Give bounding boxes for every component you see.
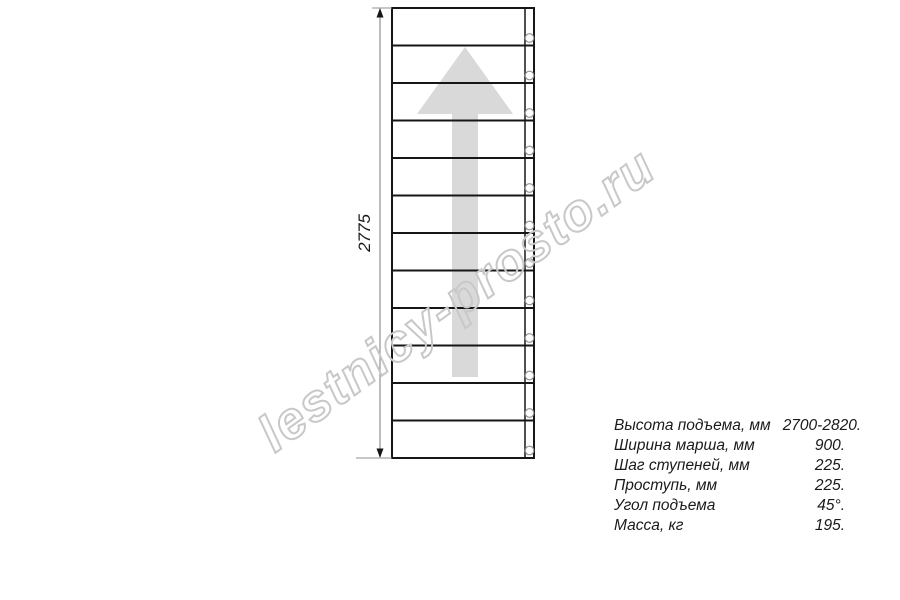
spec-label: Высота подъема, мм xyxy=(614,416,771,436)
spec-label: Масса, кг xyxy=(614,516,683,536)
spec-label: Проступь, мм xyxy=(614,476,717,496)
spec-row: Высота подъема, мм2700-2820. xyxy=(614,416,845,436)
baluster-circle xyxy=(525,334,534,343)
spec-label: Ширина марша, мм xyxy=(614,436,755,456)
spec-value: 45°. xyxy=(817,496,845,516)
spec-value: 900. xyxy=(815,436,845,456)
spec-value: 195. xyxy=(815,516,845,536)
baluster-circle xyxy=(525,146,534,155)
dimension-arrowhead-top xyxy=(377,8,384,18)
spec-row: Проступь, мм225. xyxy=(614,476,845,496)
spec-label: Угол подъема xyxy=(614,496,715,516)
spec-row: Ширина марша, мм900. xyxy=(614,436,845,456)
baluster-circle xyxy=(525,409,534,418)
baluster-circle xyxy=(525,221,534,230)
spec-row: Шаг ступеней, мм225. xyxy=(614,456,845,476)
page: 2775 lestnicy-prosto.ru Высота подъема, … xyxy=(0,0,900,600)
baluster-circle xyxy=(525,71,534,80)
spec-value: 2700-2820. xyxy=(783,416,861,436)
spec-value: 225. xyxy=(815,476,845,496)
dimension-arrowhead-bottom xyxy=(377,449,384,459)
baluster-circle xyxy=(525,109,534,118)
spec-row: Масса, кг195. xyxy=(614,516,845,536)
spec-table: Высота подъема, мм2700-2820.Ширина марша… xyxy=(614,416,845,536)
baluster-circle xyxy=(525,184,534,193)
baluster-circle xyxy=(525,259,534,268)
baluster-circle xyxy=(525,34,534,43)
handrail-balusters xyxy=(525,34,534,455)
direction-up-arrow xyxy=(417,47,513,377)
dimension: 2775 xyxy=(355,8,392,458)
spec-label: Шаг ступеней, мм xyxy=(614,456,750,476)
baluster-circle xyxy=(525,446,534,455)
dimension-label: 2775 xyxy=(355,214,374,253)
spec-row: Угол подъема45°. xyxy=(614,496,845,516)
baluster-circle xyxy=(525,296,534,305)
baluster-circle xyxy=(525,371,534,380)
spec-value: 225. xyxy=(815,456,845,476)
